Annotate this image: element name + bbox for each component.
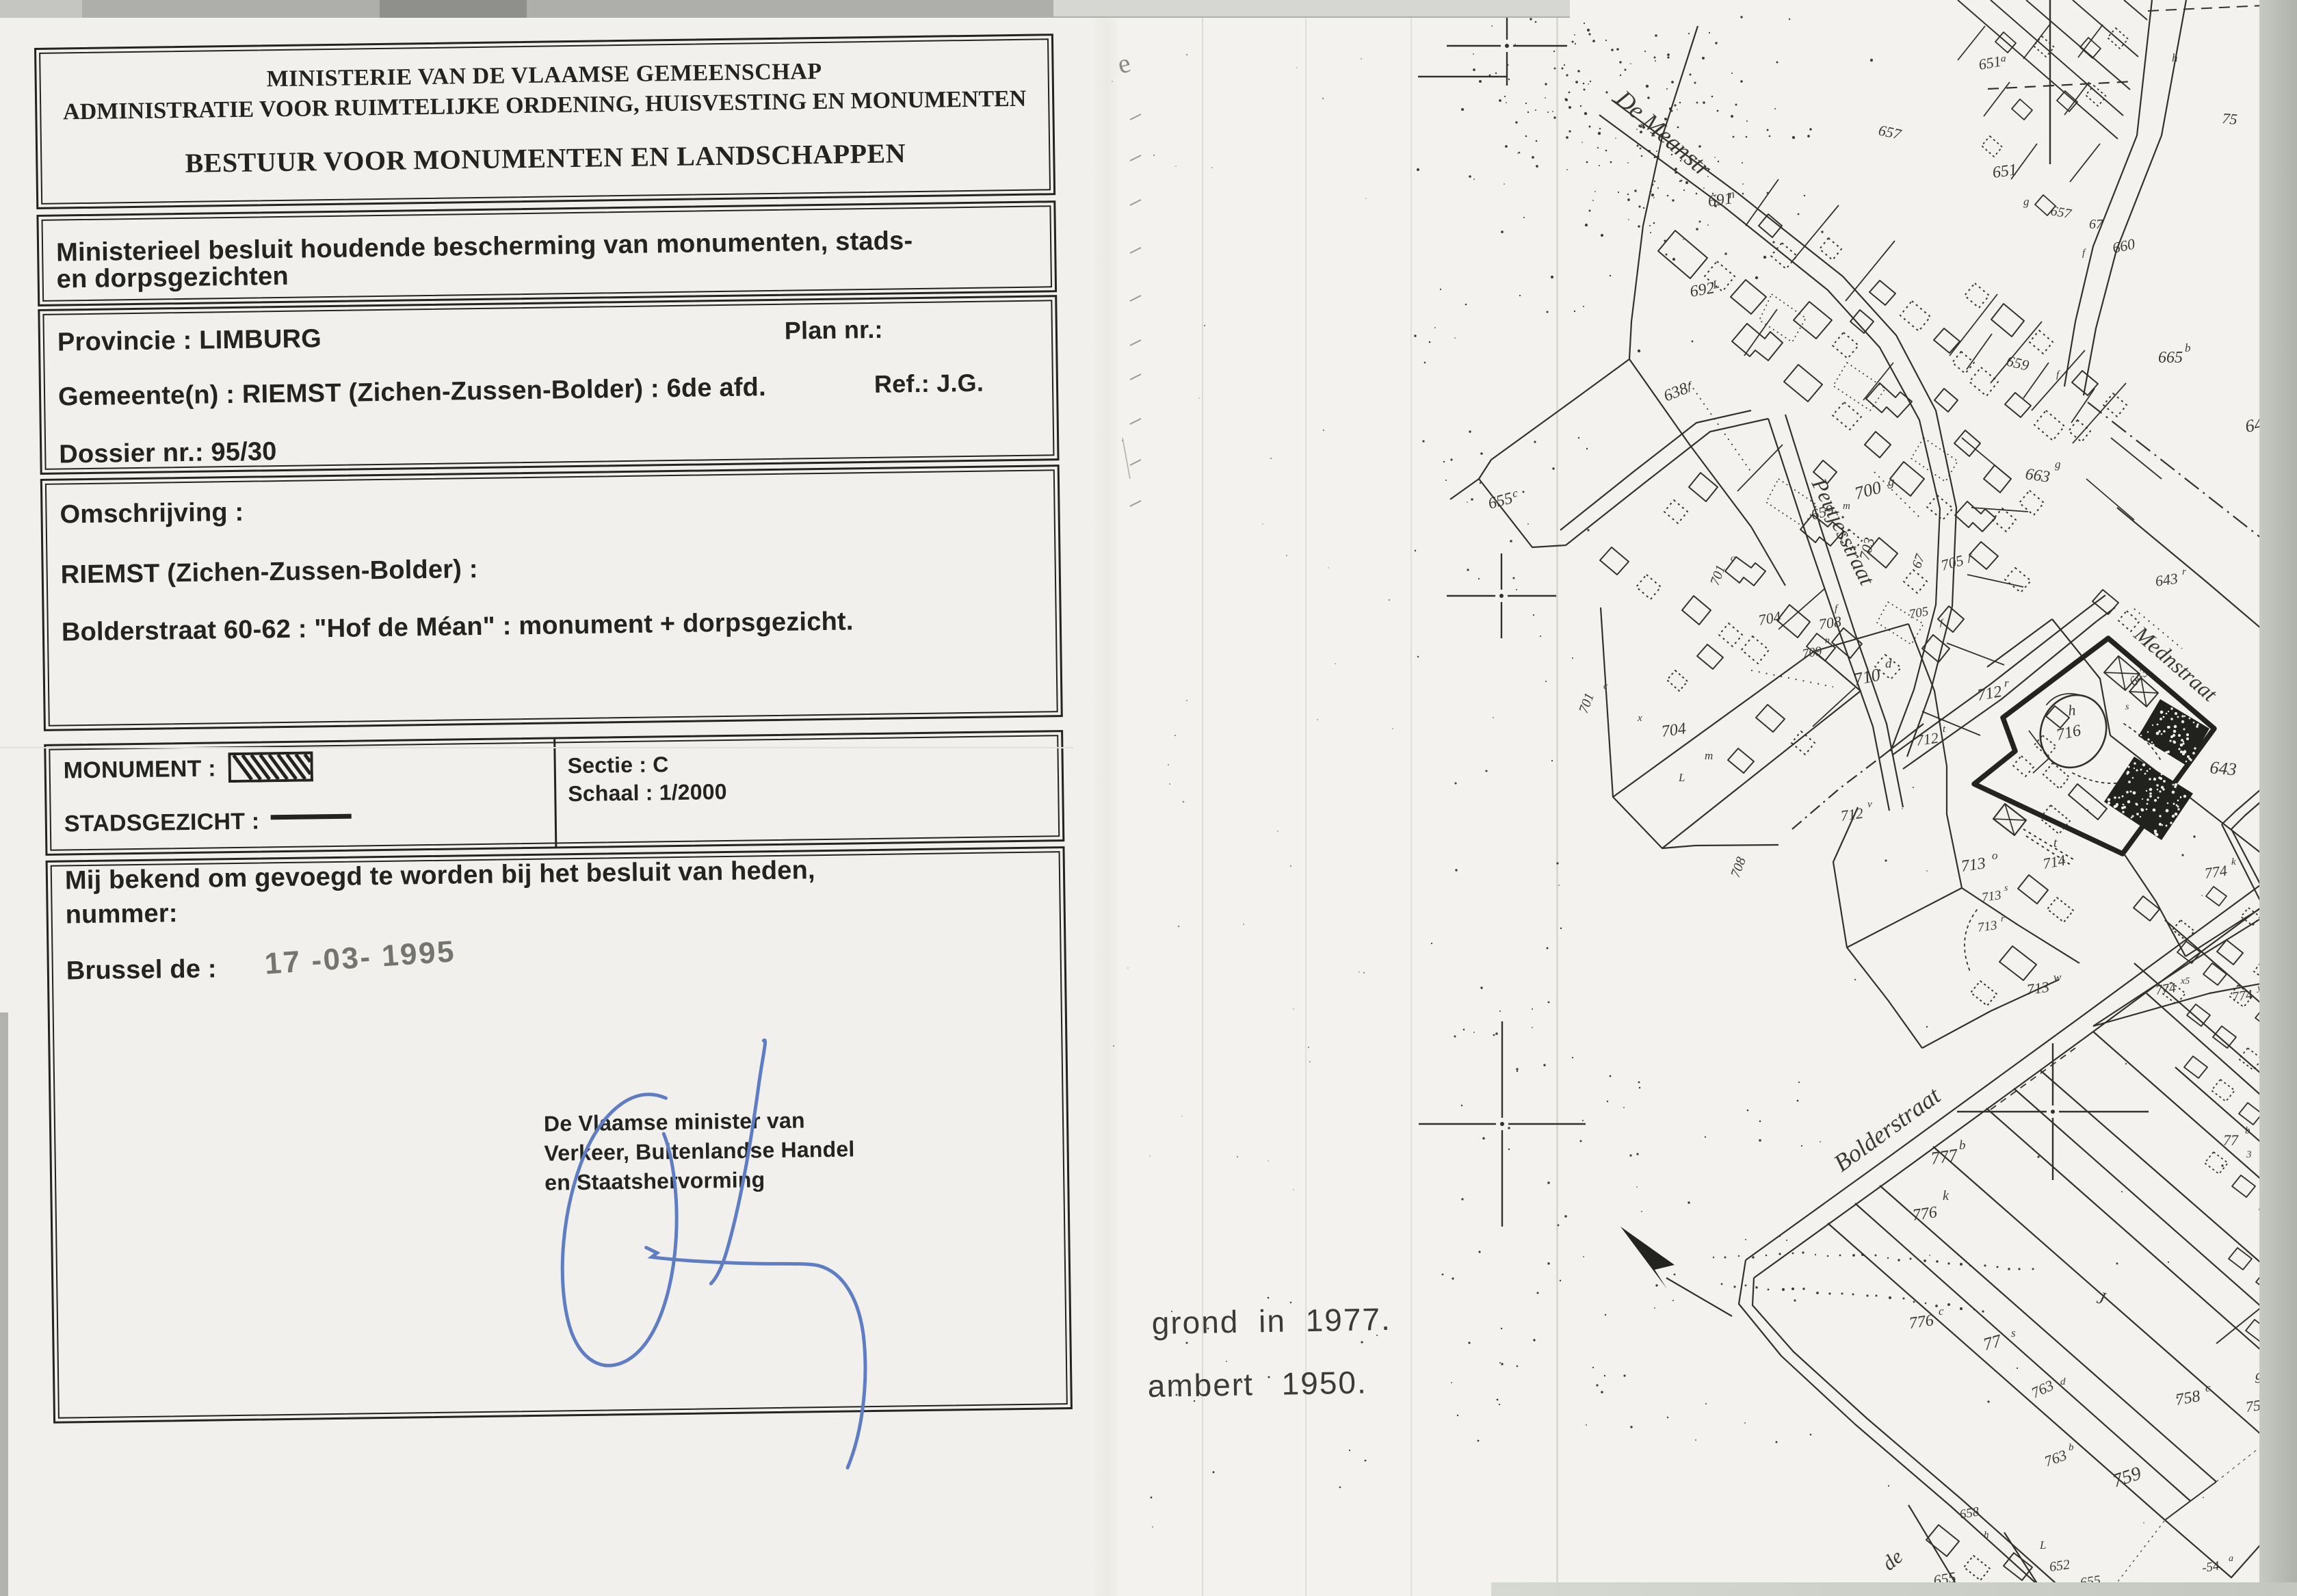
svg-text:704: 704 xyxy=(1757,608,1783,629)
svg-text:b: b xyxy=(2185,341,2191,354)
svg-text:c: c xyxy=(1603,681,1608,692)
svg-text:r: r xyxy=(2004,677,2009,690)
svg-text:774: 774 xyxy=(2203,862,2228,882)
svg-text:712: 712 xyxy=(1839,804,1864,824)
svg-text:657: 657 xyxy=(2049,203,2073,222)
svg-text:m: m xyxy=(1843,501,1850,512)
svg-text:705: 705 xyxy=(1939,551,1965,574)
svg-text:c: c xyxy=(1731,553,1735,564)
svg-text:L: L xyxy=(1678,771,1685,784)
svg-text:r: r xyxy=(2182,566,2186,577)
svg-text:77: 77 xyxy=(2223,1131,2239,1149)
svg-text:L: L xyxy=(2039,1539,2046,1552)
svg-text:709: 709 xyxy=(1801,644,1823,662)
svg-text:3: 3 xyxy=(2246,1149,2252,1160)
svg-text:a: a xyxy=(2229,1554,2233,1564)
svg-text:b: b xyxy=(2069,1442,2074,1453)
svg-text:651: 651 xyxy=(1978,53,2003,73)
svg-text:651: 651 xyxy=(1991,161,2018,182)
svg-text:w: w xyxy=(2053,971,2062,984)
svg-text:h: h xyxy=(2067,701,2076,719)
svg-text:67: 67 xyxy=(1909,551,1928,570)
svg-text:704: 704 xyxy=(1660,720,1687,741)
svg-text:701: 701 xyxy=(1707,563,1729,588)
svg-text:k: k xyxy=(2231,856,2236,867)
svg-text:716: 716 xyxy=(2055,722,2083,744)
svg-text:x5: x5 xyxy=(2180,976,2190,986)
svg-text:665: 665 xyxy=(2158,349,2183,367)
svg-text:d: d xyxy=(2060,1376,2066,1387)
svg-text:g: g xyxy=(1888,475,1895,489)
svg-text:714: 714 xyxy=(2042,852,2067,872)
svg-text:c: c xyxy=(1939,1305,1944,1318)
svg-text:a: a xyxy=(2001,53,2006,64)
svg-text:652: 652 xyxy=(2049,1557,2071,1575)
svg-text:763: 763 xyxy=(2029,1376,2056,1402)
svg-text:659: 659 xyxy=(2005,352,2031,374)
svg-text:o: o xyxy=(1992,849,1998,862)
svg-text:de: de xyxy=(1878,1545,1907,1575)
svg-text:701: 701 xyxy=(1576,691,1597,716)
svg-text:75: 75 xyxy=(2222,109,2238,128)
svg-text:759: 759 xyxy=(2110,1463,2144,1491)
svg-text:658: 658 xyxy=(1958,1504,1980,1522)
svg-text:e: e xyxy=(1114,47,1134,80)
svg-text:663: 663 xyxy=(2024,465,2051,486)
svg-text:s: s xyxy=(2125,702,2129,712)
svg-text:n: n xyxy=(1728,187,1735,201)
svg-text:d: d xyxy=(1885,657,1892,671)
svg-text:v: v xyxy=(1867,799,1872,810)
svg-text:s: s xyxy=(2011,1326,2016,1339)
svg-text:f: f xyxy=(1968,553,1972,564)
svg-text:grond in 1977.: grond in 1977. xyxy=(1151,1301,1391,1341)
svg-text:s: s xyxy=(2004,883,2008,893)
svg-text:638: 638 xyxy=(1662,380,1691,406)
svg-text:77: 77 xyxy=(1981,1331,2004,1355)
svg-text:643: 643 xyxy=(2154,570,2179,590)
svg-text:713: 713 xyxy=(2025,978,2050,998)
svg-text:776: 776 xyxy=(1908,1311,1934,1333)
svg-text:700: 700 xyxy=(1852,478,1883,503)
svg-text:m: m xyxy=(1705,749,1713,762)
svg-text:776: 776 xyxy=(1911,1203,1938,1225)
svg-text:758: 758 xyxy=(2175,1387,2202,1409)
svg-text:b: b xyxy=(1959,1138,1966,1153)
svg-text:713: 713 xyxy=(1960,854,1986,876)
svg-text:h: h xyxy=(2172,51,2178,64)
svg-text:n: n xyxy=(1825,636,1830,646)
svg-text:f: f xyxy=(2082,248,2086,259)
svg-text:t: t xyxy=(2053,836,2058,850)
svg-text:705: 705 xyxy=(1908,604,1930,622)
svg-text:ambert 1950.: ambert 1950. xyxy=(1147,1364,1367,1404)
svg-text:643: 643 xyxy=(2209,757,2237,779)
svg-text:713: 713 xyxy=(1977,918,1998,935)
svg-text:f: f xyxy=(1940,618,1944,628)
svg-text:g: g xyxy=(2023,195,2030,208)
svg-text:c: c xyxy=(1511,486,1519,500)
svg-text:660: 660 xyxy=(2111,235,2136,257)
svg-text:t: t xyxy=(1943,724,1946,735)
svg-text:708: 708 xyxy=(1817,613,1842,633)
svg-text:708: 708 xyxy=(1728,855,1749,880)
svg-text:Bolderstraat: Bolderstraat xyxy=(1828,1082,1946,1177)
svg-text:-54: -54 xyxy=(2201,1559,2220,1575)
svg-text:763: 763 xyxy=(2042,1446,2069,1470)
svg-text:k: k xyxy=(1943,1188,1950,1203)
svg-text:710: 710 xyxy=(1852,664,1882,689)
svg-text:657: 657 xyxy=(1877,121,1903,143)
svg-text:c: c xyxy=(2205,1381,2211,1394)
svg-text:777: 777 xyxy=(1930,1145,1960,1168)
svg-text:h: h xyxy=(1984,1530,1989,1541)
svg-text:x: x xyxy=(1637,713,1642,724)
svg-text:g: g xyxy=(2055,458,2061,471)
